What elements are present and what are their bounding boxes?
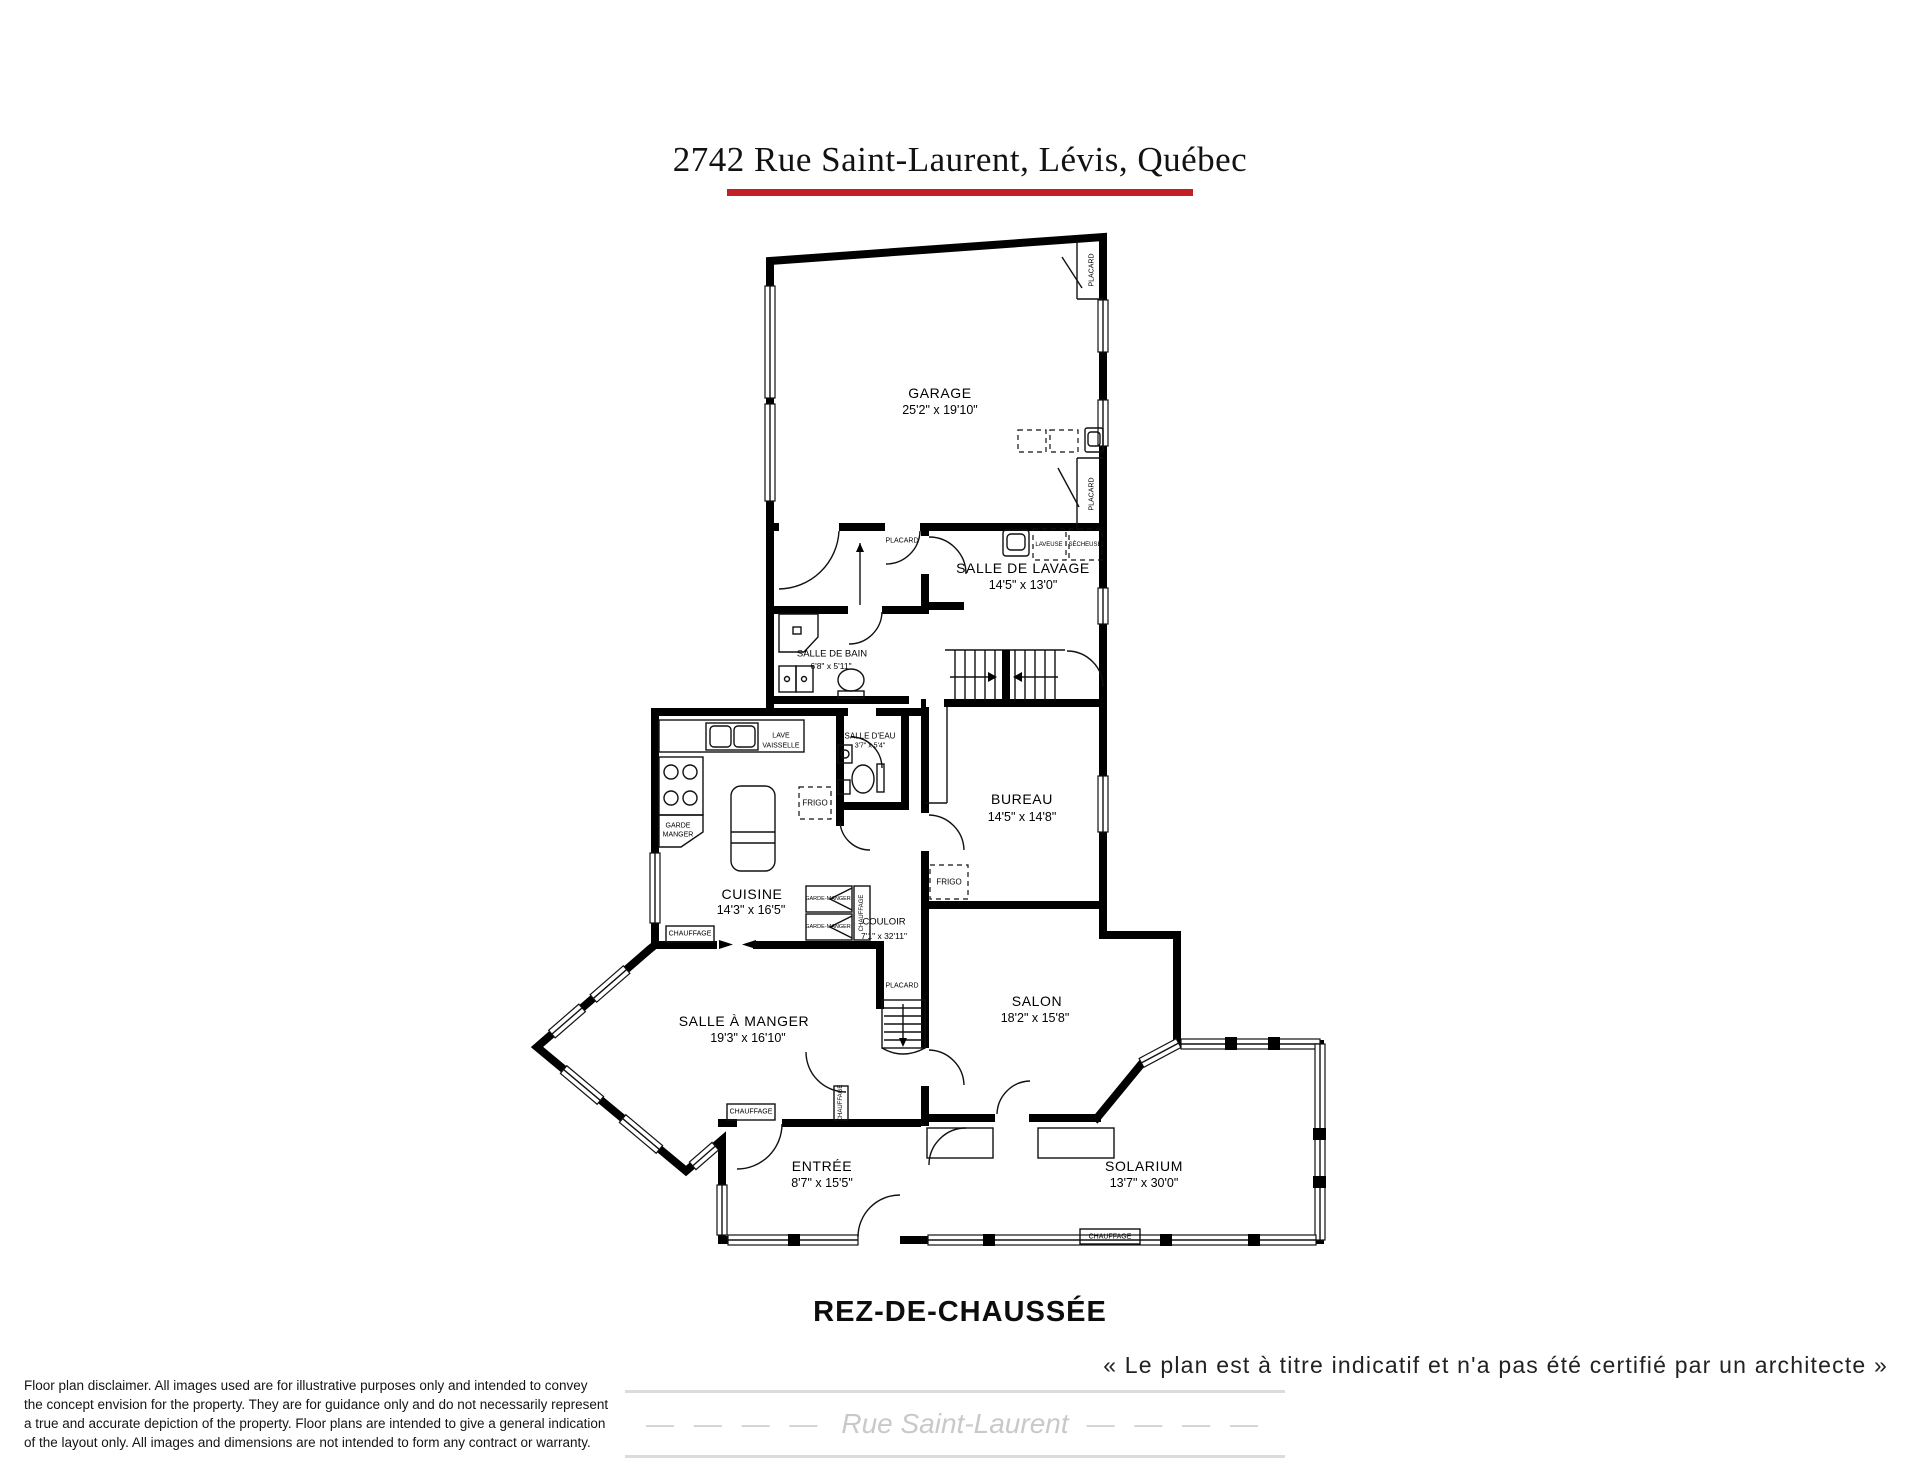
pantry-label-2: MANGER bbox=[663, 832, 694, 839]
fridge-label-kitchen: FRIGO bbox=[802, 799, 827, 808]
room-label-salon: SALON bbox=[1012, 993, 1062, 1009]
room-label-bureau: BUREAU bbox=[991, 791, 1053, 807]
room-label-eau: SALLE D'EAU bbox=[845, 732, 896, 741]
floor-plan-drawing: GARAGE 25'2" x 19'10" SALLE DE LAVAGE 14… bbox=[0, 0, 1920, 1483]
door-openings bbox=[717, 521, 1029, 1245]
floor-plan-disclaimer: Floor plan disclaimer. All images used a… bbox=[24, 1376, 609, 1453]
dryer-label: SÉCHEUSE bbox=[1068, 541, 1101, 548]
room-label-lavage: SALLE DE LAVAGE bbox=[956, 560, 1090, 576]
dishwasher-label-1: LAVE bbox=[772, 733, 790, 740]
room-label-entree: ENTRÉE bbox=[792, 1158, 852, 1174]
room-dims-bureau: 14'5" x 14'8" bbox=[988, 810, 1057, 824]
closet-label-2: GARDE-MANGER bbox=[805, 924, 851, 930]
street-band: — — — — Rue Saint-Laurent — — — — bbox=[625, 1390, 1285, 1458]
closet-label-1: GARDE-MANGER bbox=[805, 896, 851, 902]
small-labels: PLACARD PLACARD PLACARD PLACARD LAVEUSE … bbox=[663, 253, 1132, 1240]
kitchen-island bbox=[731, 786, 775, 871]
room-dims-couloir: 7'1" x 32'11" bbox=[861, 931, 907, 941]
room-dims-manger: 19'3" x 16'10" bbox=[710, 1031, 786, 1045]
street-name: Rue Saint-Laurent bbox=[841, 1408, 1068, 1440]
room-label-manger: SALLE À MANGER bbox=[679, 1013, 810, 1029]
heater-label-corridor: CHAUFFAGE bbox=[859, 895, 865, 932]
room-label-couloir: COULOIR bbox=[862, 917, 905, 928]
street-dashes-right: — — — — bbox=[1087, 1408, 1264, 1440]
dishwasher-label-2: VAISSELLE bbox=[762, 743, 800, 750]
stove bbox=[659, 757, 703, 815]
room-dims-entree: 8'7" x 15'5" bbox=[791, 1176, 853, 1190]
fridge-label-bureau: FRIGO bbox=[936, 878, 961, 887]
room-dims-eau: 3'7" x 5'4" bbox=[855, 743, 886, 750]
washer-label: LAVEUSE bbox=[1035, 542, 1062, 548]
floor-plan-page: 2742 Rue Saint-Laurent, Lévis, Québec bbox=[0, 0, 1920, 1483]
room-dims-bain: 6'8" x 5'11" bbox=[810, 661, 851, 671]
heater-label-kitchen: CHAUFFAGE bbox=[669, 931, 712, 938]
street-dashes-left: — — — — bbox=[646, 1408, 823, 1440]
room-label-bain: SALLE DE BAIN bbox=[797, 649, 867, 660]
placard-label-stairs: PLACARD bbox=[885, 983, 918, 990]
windows bbox=[549, 286, 1326, 1246]
room-dims-garage: 25'2" x 19'10" bbox=[902, 403, 978, 417]
room-dims-salon: 18'2" x 15'8" bbox=[1001, 1011, 1070, 1025]
room-label-solarium: SOLARIUM bbox=[1105, 1158, 1183, 1174]
room-label-garage: GARAGE bbox=[908, 385, 972, 401]
heater-label-hall: CHAUFFAGE bbox=[838, 1085, 844, 1122]
heater-label-dining: CHAUFFAGE bbox=[730, 1109, 773, 1116]
pantry-label-1: GARDE bbox=[666, 823, 691, 830]
stairs-main bbox=[945, 650, 1065, 703]
solarium-fixtures bbox=[727, 1086, 1140, 1244]
stairs-basement bbox=[882, 1000, 925, 1054]
room-label-cuisine: CUISINE bbox=[722, 886, 783, 902]
floor-level-label: REZ-DE-CHAUSSÉE bbox=[0, 1296, 1920, 1329]
architect-disclaimer-quote: « Le plan est à titre indicatif et n'a p… bbox=[1103, 1352, 1888, 1379]
heater-label-solarium: CHAUFFAGE bbox=[1089, 1234, 1132, 1241]
placard-label-laundry: PLACARD bbox=[1089, 477, 1096, 510]
placard-label-corridor: PLACARD bbox=[885, 538, 918, 545]
room-dims-solarium: 13'7" x 30'0" bbox=[1110, 1176, 1179, 1190]
room-dims-cuisine: 14'3" x 16'5" bbox=[717, 903, 786, 917]
room-dims-lavage: 14'5" x 13'0" bbox=[989, 578, 1058, 592]
placard-label-garage: PLACARD bbox=[1089, 253, 1096, 286]
